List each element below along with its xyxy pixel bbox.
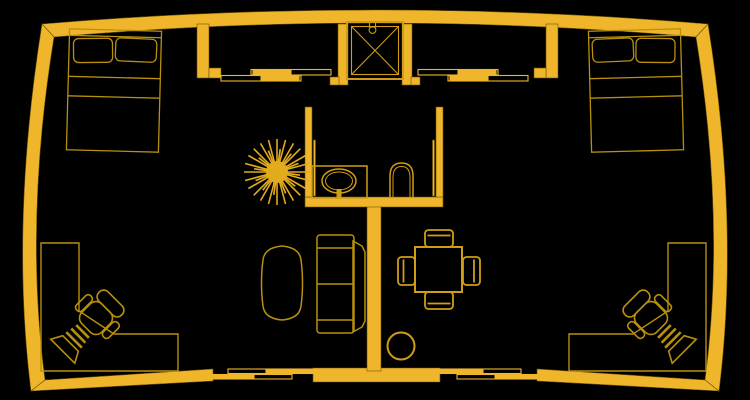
bed-frame — [66, 29, 161, 152]
dining-chair-right — [463, 257, 480, 285]
office-chair-right — [616, 283, 701, 368]
shower — [347, 22, 403, 79]
shower-head-icon — [369, 27, 376, 34]
wall-shower-right-foot — [411, 77, 420, 85]
wall-stub-right-foot — [534, 68, 546, 78]
bed-fold-line-2 — [590, 96, 682, 98]
sofa-backrest — [353, 241, 365, 332]
floor-plan-svg — [0, 0, 750, 400]
bed-right — [588, 29, 683, 152]
bed-pillow-right — [115, 38, 157, 63]
sofa — [317, 235, 365, 333]
desk-left-top — [41, 243, 178, 371]
dining-chair-left — [398, 257, 415, 285]
sink-faucet-icon — [337, 189, 342, 198]
bed-pillow-right — [636, 38, 675, 62]
sink — [312, 166, 367, 198]
dining-chair-bottom — [425, 292, 453, 309]
wall-bathroom-right-face — [433, 140, 435, 196]
toilet — [390, 163, 413, 197]
bed-fold-line-2 — [68, 96, 160, 98]
sliding-door-top-left — [221, 70, 331, 82]
sink-basin-inner — [326, 172, 353, 190]
coffee-table — [262, 246, 303, 320]
sliding-door-top-right — [418, 70, 528, 82]
wall-center-stem — [367, 205, 381, 371]
floor-plan-canvas — [0, 0, 750, 400]
desk-right — [569, 243, 706, 371]
plant — [244, 139, 310, 205]
wall-stub-left-foot — [209, 68, 221, 78]
bed-fold-line-1 — [590, 76, 682, 78]
wall-stub-left — [197, 24, 209, 78]
bed-pillow-left — [73, 38, 112, 62]
bed-headboard-line — [69, 35, 161, 37]
dining-table — [415, 247, 462, 292]
wall-bathroom-left-face — [314, 140, 316, 196]
wall-bottom-left — [31, 369, 213, 391]
wall-left — [23, 24, 54, 391]
desk-left — [41, 243, 178, 371]
stool — [388, 333, 415, 360]
bed-left — [66, 29, 161, 152]
wall-shower-left-foot — [330, 77, 339, 85]
wall-bathroom-left — [305, 107, 312, 197]
bed-pillow-left — [592, 38, 634, 63]
toilet-bowl-inner — [393, 167, 410, 198]
sliding-door-bottom-left — [203, 369, 317, 379]
bed-headboard-line — [589, 35, 681, 37]
bed-fold-line-1 — [68, 76, 160, 78]
wall-bathroom-right — [436, 107, 443, 197]
desk-right-top — [569, 243, 706, 371]
wall-bottom-right — [537, 369, 719, 391]
wall-stub-right — [546, 24, 558, 78]
dining-chair-top — [425, 230, 453, 247]
shower-cross — [352, 27, 399, 75]
dining-set — [398, 230, 480, 309]
office-chair-left — [47, 283, 132, 368]
wall-right — [696, 24, 727, 391]
sliding-door-bottom-right — [432, 369, 546, 379]
coffee-table-top — [262, 246, 303, 320]
